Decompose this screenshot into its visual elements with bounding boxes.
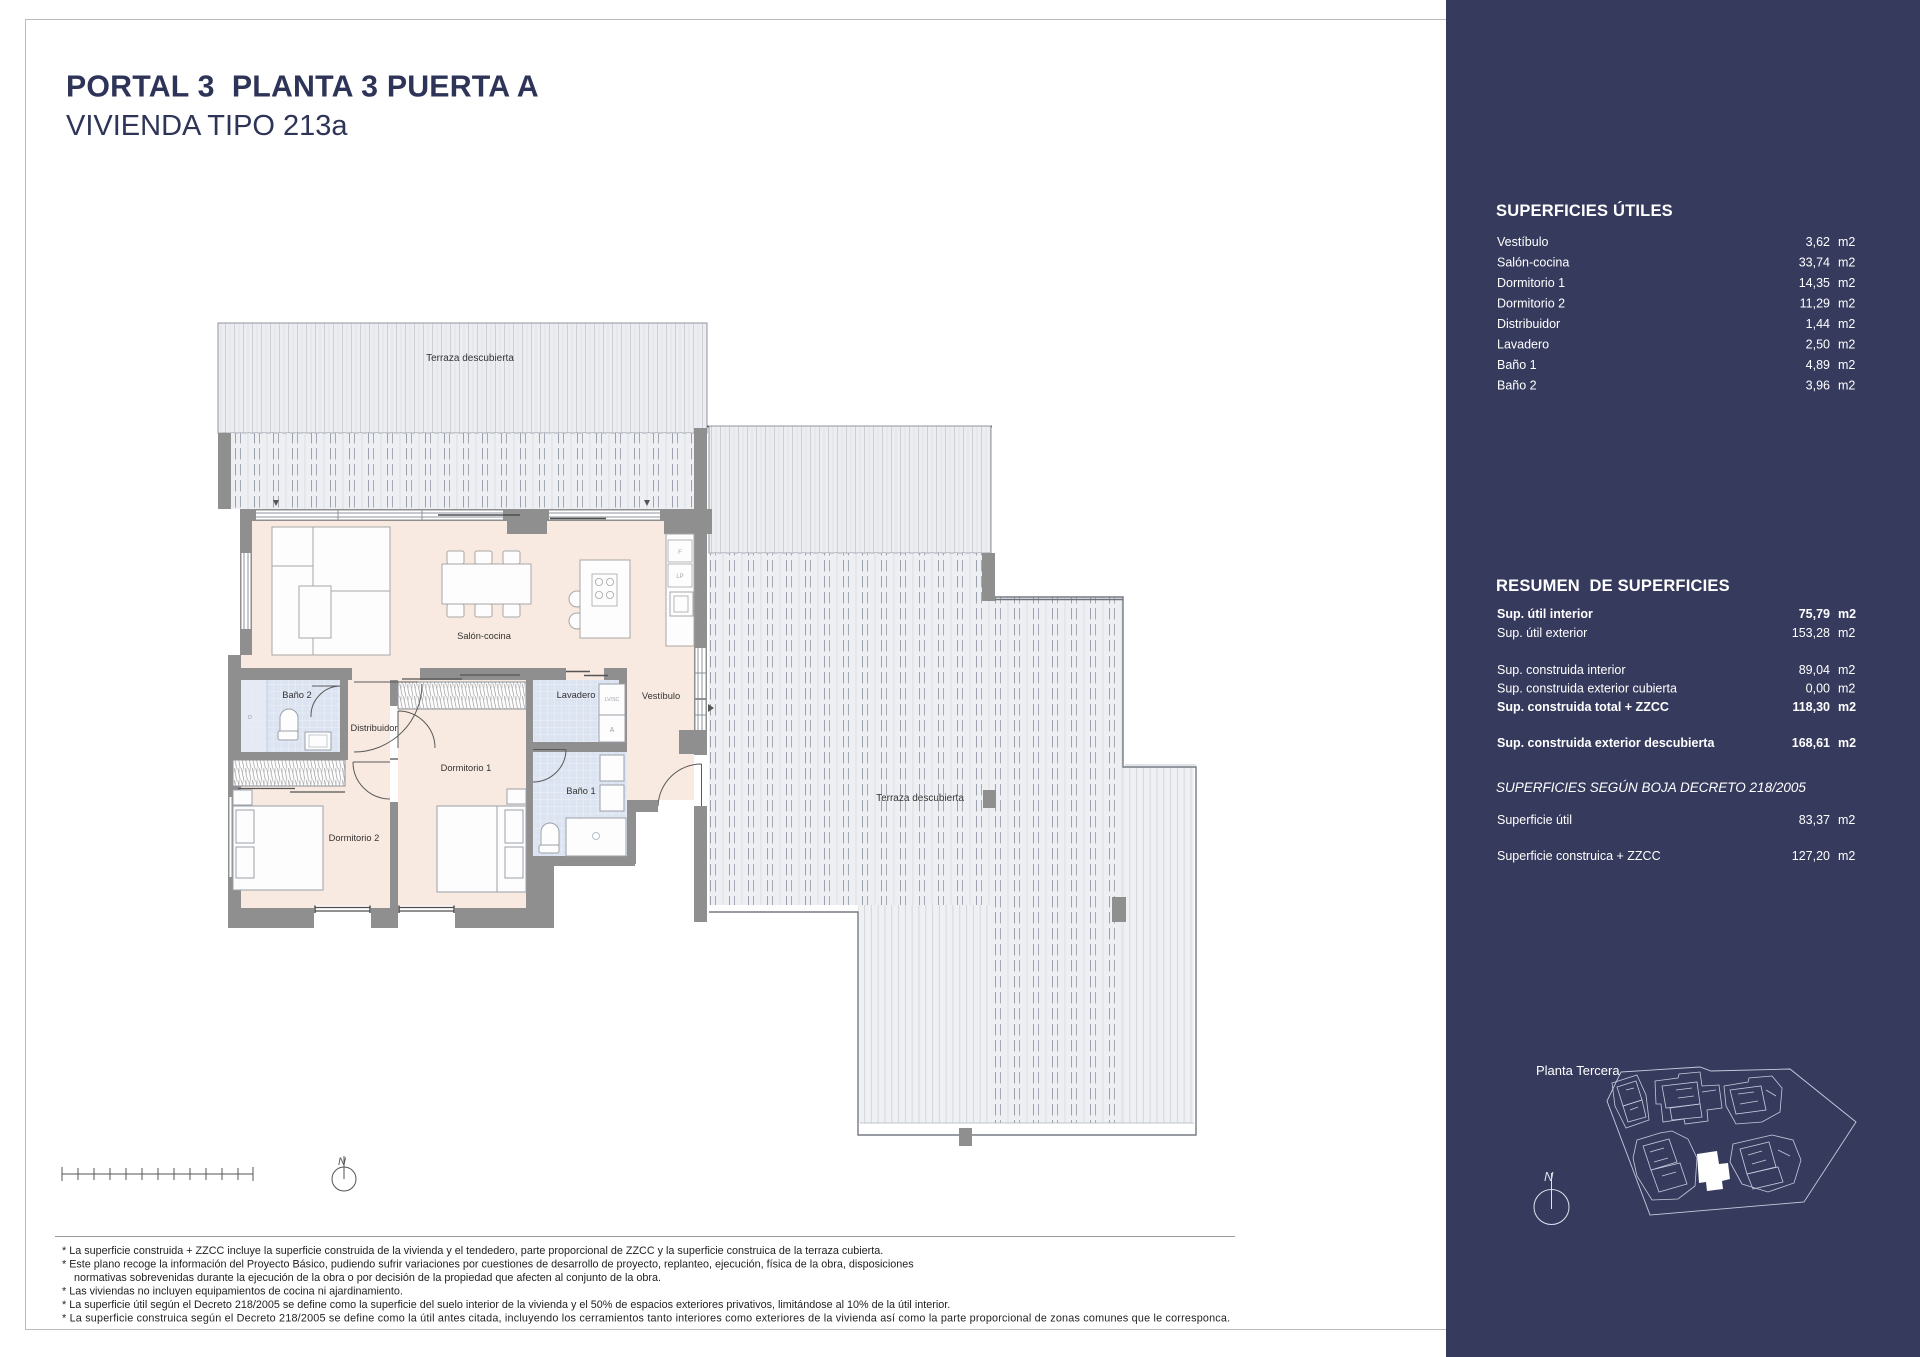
svg-text:Terraza descubierta: Terraza descubierta: [426, 353, 514, 364]
svg-text:LP: LP: [676, 574, 683, 580]
svg-text:m2: m2: [1838, 626, 1855, 640]
svg-text:F: F: [678, 550, 682, 556]
svg-text:m2: m2: [1838, 813, 1855, 827]
svg-text:Sup. útil interior: Sup. útil interior: [1497, 607, 1593, 621]
svg-text:Baño 2: Baño 2: [282, 690, 311, 700]
svg-text:m2: m2: [1838, 297, 1855, 311]
svg-text:Planta Tercera: Planta Tercera: [1536, 1063, 1620, 1078]
svg-text:normativas sobrevenidas durant: normativas sobrevenidas durante la ejecu…: [74, 1272, 661, 1284]
svg-text:14,35: 14,35: [1799, 276, 1830, 290]
svg-text:Vestíbulo: Vestíbulo: [642, 691, 680, 701]
svg-text:SUPERFICIES SEGÚN BOJA DECRETO: SUPERFICIES SEGÚN BOJA DECRETO 218/2005: [1496, 780, 1806, 795]
svg-text:* La superficie útil según el: * La superficie útil según el Decreto 21…: [62, 1299, 950, 1311]
svg-text:VIVIENDA TIPO 213a: VIVIENDA TIPO 213a: [66, 110, 348, 142]
svg-text:m2: m2: [1838, 736, 1856, 750]
svg-text:4,89: 4,89: [1806, 358, 1830, 372]
svg-text:m2: m2: [1838, 682, 1855, 696]
svg-text:m2: m2: [1838, 379, 1855, 393]
svg-text:0,00: 0,00: [1806, 682, 1830, 696]
svg-text:Dormitorio 1: Dormitorio 1: [1497, 276, 1565, 290]
svg-text:Sup. construida interior: Sup. construida interior: [1497, 663, 1626, 677]
svg-text:A: A: [610, 727, 615, 734]
svg-text:m2: m2: [1838, 663, 1855, 677]
svg-text:* La superficie construica seg: * La superficie construica según el Decr…: [62, 1313, 1230, 1325]
svg-text:PORTAL 3 PLANTA 3 PUERTA A: PORTAL 3 PLANTA 3 PUERTA A: [66, 71, 539, 104]
svg-text:m2: m2: [1838, 607, 1856, 621]
svg-text:2,50: 2,50: [1806, 338, 1830, 352]
svg-text:Sup. construida exterior descu: Sup. construida exterior descubierta: [1497, 736, 1715, 750]
svg-text:m2: m2: [1838, 317, 1855, 331]
svg-text:153,28: 153,28: [1792, 626, 1830, 640]
svg-text:Superficie útil: Superficie útil: [1497, 813, 1572, 827]
svg-text:11,29: 11,29: [1800, 297, 1830, 311]
svg-text:Dormitorio 2: Dormitorio 2: [329, 833, 380, 843]
svg-text:75,79: 75,79: [1799, 607, 1830, 621]
svg-text:* Este plano recoge la informa: * Este plano recoge la información del P…: [62, 1259, 914, 1271]
svg-text:1,44: 1,44: [1806, 317, 1830, 331]
svg-text:RESUMEN DE SUPERFICIES: RESUMEN DE SUPERFICIES: [1496, 577, 1730, 595]
svg-text:Lavadero: Lavadero: [1497, 338, 1549, 352]
svg-text:LV/SC: LV/SC: [605, 697, 620, 703]
svg-text:3,96: 3,96: [1806, 379, 1830, 393]
svg-text:Terraza descubierta: Terraza descubierta: [876, 793, 964, 804]
svg-text:m2: m2: [1838, 235, 1855, 249]
svg-text:Salón-cocina: Salón-cocina: [1497, 256, 1569, 270]
svg-text:Distribuidor: Distribuidor: [1497, 317, 1560, 331]
svg-text:Sup. construida exterior cubie: Sup. construida exterior cubierta: [1497, 682, 1677, 696]
svg-text:Baño 1: Baño 1: [1497, 358, 1537, 372]
svg-text:* La superficie construida + Z: * La superficie construida + ZZCC incluy…: [62, 1245, 883, 1257]
svg-text:m2: m2: [1838, 256, 1855, 270]
svg-text:SUPERFICIES ÚTILES: SUPERFICIES ÚTILES: [1496, 201, 1673, 220]
svg-text:m2: m2: [1838, 358, 1855, 372]
svg-text:m2: m2: [1838, 338, 1855, 352]
svg-text:Dormitorio 2: Dormitorio 2: [1497, 297, 1565, 311]
svg-text:* Las viviendas no incluyen eq: * Las viviendas no incluyen equipamiento…: [62, 1286, 403, 1298]
svg-text:168,61: 168,61: [1792, 736, 1830, 750]
svg-text:Sup. construida total + ZZCC: Sup. construida total + ZZCC: [1497, 700, 1669, 714]
svg-text:N: N: [338, 1156, 346, 1168]
svg-text:Superficie construica + ZZCC: Superficie construica + ZZCC: [1497, 849, 1661, 863]
svg-text:118,30: 118,30: [1792, 700, 1830, 714]
svg-text:Distribuidor: Distribuidor: [350, 723, 397, 733]
svg-text:Salón-cocina: Salón-cocina: [457, 631, 512, 641]
svg-text:Baño 1: Baño 1: [566, 786, 595, 796]
svg-text:83,37: 83,37: [1799, 813, 1830, 827]
svg-text:m2: m2: [1838, 276, 1855, 290]
svg-text:89,04: 89,04: [1799, 663, 1830, 677]
svg-text:Vestíbulo: Vestíbulo: [1497, 235, 1548, 249]
svg-text:m2: m2: [1838, 700, 1856, 714]
svg-text:Sup. útil exterior: Sup. útil exterior: [1497, 626, 1587, 640]
svg-text:N: N: [1544, 1169, 1554, 1184]
svg-text:Dormitorio 1: Dormitorio 1: [441, 763, 492, 773]
svg-text:33,74: 33,74: [1799, 256, 1830, 270]
svg-text:D: D: [248, 715, 252, 721]
svg-text:m2: m2: [1838, 849, 1855, 863]
svg-text:Baño 2: Baño 2: [1497, 379, 1537, 393]
svg-text:127,20: 127,20: [1792, 849, 1830, 863]
svg-text:Lavadero: Lavadero: [557, 690, 596, 700]
svg-text:3,62: 3,62: [1806, 235, 1830, 249]
